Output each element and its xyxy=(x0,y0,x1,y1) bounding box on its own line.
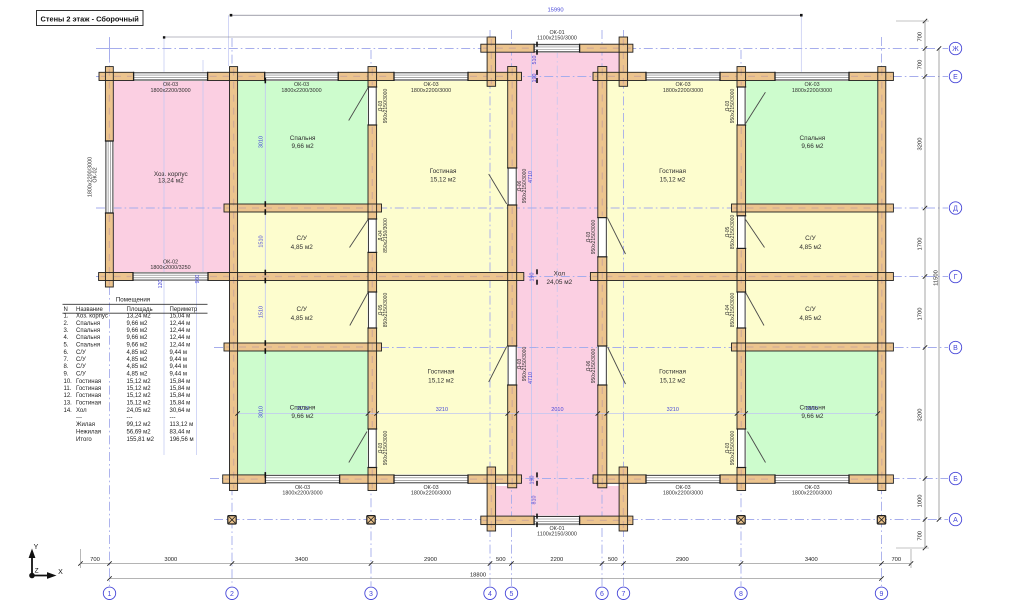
svg-text:С/У: С/У xyxy=(805,306,816,313)
svg-text:700: 700 xyxy=(891,557,901,563)
svg-text:15,84 м: 15,84 м xyxy=(170,379,191,385)
svg-text:4710: 4710 xyxy=(528,372,534,384)
svg-text:850х2150/3000: 850х2150/3000 xyxy=(730,293,736,328)
svg-text:4.: 4. xyxy=(64,335,69,341)
svg-text:3.: 3. xyxy=(64,328,69,334)
svg-text:4,85 м2: 4,85 м2 xyxy=(799,315,822,322)
svg-text:Гостиная: Гостиная xyxy=(430,168,457,175)
svg-text:850х2150/3000: 850х2150/3000 xyxy=(383,293,389,328)
svg-text:99,12 м2: 99,12 м2 xyxy=(127,422,152,428)
svg-text:15,12 м2: 15,12 м2 xyxy=(127,379,152,385)
svg-text:4: 4 xyxy=(488,591,492,598)
svg-text:1800х2200/3000: 1800х2200/3000 xyxy=(792,88,832,94)
svg-text:Спальня: Спальня xyxy=(76,321,100,327)
svg-text:Спальня: Спальня xyxy=(800,135,826,142)
svg-text:1510: 1510 xyxy=(259,306,265,318)
svg-text:3200: 3200 xyxy=(917,409,923,422)
svg-text:4,85 м2: 4,85 м2 xyxy=(291,244,314,251)
svg-text:6: 6 xyxy=(600,591,604,598)
svg-text:Y: Y xyxy=(34,544,39,551)
svg-text:950х2150/3000: 950х2150/3000 xyxy=(383,89,389,124)
svg-text:15,12 м2: 15,12 м2 xyxy=(127,393,152,399)
svg-text:Е: Е xyxy=(953,74,958,81)
svg-text:2900: 2900 xyxy=(676,557,689,563)
svg-text:С/У: С/У xyxy=(296,306,307,313)
svg-text:4,85 м2: 4,85 м2 xyxy=(127,357,148,363)
svg-text:9,44 м: 9,44 м xyxy=(170,350,187,356)
svg-text:11500: 11500 xyxy=(933,270,939,286)
svg-text:12,44 м: 12,44 м xyxy=(170,335,191,341)
svg-text:950х2150/3000: 950х2150/3000 xyxy=(522,347,528,382)
svg-text:500: 500 xyxy=(496,557,506,563)
svg-text:С/У: С/У xyxy=(76,372,86,378)
svg-text:3210: 3210 xyxy=(436,407,448,413)
svg-text:190: 190 xyxy=(529,476,535,485)
svg-text:6.: 6. xyxy=(64,350,69,356)
svg-text:15,84 м: 15,84 м xyxy=(170,386,191,392)
svg-text:1: 1 xyxy=(108,591,112,598)
svg-text:Гостиная: Гостиная xyxy=(76,386,101,392)
svg-text:9,44 м: 9,44 м xyxy=(170,357,187,363)
svg-text:13,24 м2: 13,24 м2 xyxy=(127,314,152,320)
svg-text:190: 190 xyxy=(532,74,538,83)
svg-text:Гостиная: Гостиная xyxy=(659,369,686,376)
svg-text:18800: 18800 xyxy=(470,572,486,578)
svg-text:Гостиная: Гостиная xyxy=(76,393,101,399)
svg-text:Помещения: Помещения xyxy=(116,297,150,304)
svg-text:N: N xyxy=(64,307,68,313)
svg-text:4,85 м2: 4,85 м2 xyxy=(127,364,148,370)
svg-text:9,44 м: 9,44 м xyxy=(170,364,187,370)
svg-text:1000: 1000 xyxy=(917,495,923,508)
svg-text:Ж: Ж xyxy=(952,46,959,53)
svg-text:4,85 м2: 4,85 м2 xyxy=(127,372,148,378)
svg-text:9,66 м2: 9,66 м2 xyxy=(127,328,148,334)
svg-text:3010: 3010 xyxy=(259,406,265,418)
svg-text:15,12 м2: 15,12 м2 xyxy=(127,386,152,392)
svg-text:1800х2000/3250: 1800х2000/3250 xyxy=(150,265,190,271)
svg-text:1700: 1700 xyxy=(917,308,923,321)
svg-text:Стены 2 этаж - Сборочный: Стены 2 этаж - Сборочный xyxy=(41,14,140,23)
svg-text:Г: Г xyxy=(954,274,958,281)
svg-text:3400: 3400 xyxy=(805,557,818,563)
svg-text:9,66 м2: 9,66 м2 xyxy=(801,413,824,420)
svg-text:9,66 м2: 9,66 м2 xyxy=(127,321,148,327)
svg-text:700: 700 xyxy=(917,531,923,541)
svg-text:Гостиная: Гостиная xyxy=(76,379,101,385)
svg-text:2: 2 xyxy=(230,591,234,598)
svg-text:Название: Название xyxy=(76,307,103,313)
svg-text:Хол: Хол xyxy=(554,271,566,278)
svg-text:3400: 3400 xyxy=(295,557,308,563)
svg-text:Спальня: Спальня xyxy=(290,405,316,412)
svg-text:113,12 м: 113,12 м xyxy=(170,422,194,428)
svg-text:Хоз. корпус: Хоз. корпус xyxy=(76,314,108,320)
svg-text:9,66 м2: 9,66 м2 xyxy=(127,343,148,349)
svg-text:С/У: С/У xyxy=(296,235,307,242)
svg-text:4,85 м2: 4,85 м2 xyxy=(799,244,822,251)
svg-text:Гостиная: Гостиная xyxy=(659,168,686,175)
svg-text:---: --- xyxy=(170,415,176,421)
svg-text:10.: 10. xyxy=(64,379,73,385)
svg-text:Спальня: Спальня xyxy=(290,135,316,142)
svg-text:3200: 3200 xyxy=(917,138,923,151)
svg-text:2010: 2010 xyxy=(551,407,563,413)
svg-text:11.: 11. xyxy=(64,386,72,392)
svg-text:2.: 2. xyxy=(64,321,69,327)
svg-text:Гостиная: Гостиная xyxy=(76,401,101,407)
svg-text:9,66 м2: 9,66 м2 xyxy=(127,335,148,341)
svg-text:5: 5 xyxy=(510,591,514,598)
svg-text:1800х2200/3000: 1800х2200/3000 xyxy=(411,88,451,94)
svg-text:2900: 2900 xyxy=(424,557,437,563)
svg-text:Д: Д xyxy=(953,206,958,213)
svg-text:---: --- xyxy=(127,415,133,421)
svg-text:510: 510 xyxy=(532,56,538,65)
svg-text:1800х2200/3000: 1800х2200/3000 xyxy=(411,491,451,497)
svg-text:4710: 4710 xyxy=(528,171,534,183)
svg-text:190: 190 xyxy=(529,273,535,282)
svg-text:9.: 9. xyxy=(64,372,69,378)
svg-text:8: 8 xyxy=(739,591,743,598)
svg-text:15,12 м2: 15,12 м2 xyxy=(660,176,686,183)
svg-text:Б: Б xyxy=(953,476,958,483)
svg-text:1800х2200/3000: 1800х2200/3000 xyxy=(663,491,703,497)
svg-text:950х2150/3000: 950х2150/3000 xyxy=(591,349,597,384)
svg-text:9,66 м2: 9,66 м2 xyxy=(801,143,824,150)
svg-text:13.: 13. xyxy=(64,401,73,407)
svg-text:15,12 м2: 15,12 м2 xyxy=(660,377,686,384)
svg-text:3010: 3010 xyxy=(259,136,265,148)
svg-text:---: --- xyxy=(76,415,82,421)
svg-text:700: 700 xyxy=(917,60,923,70)
svg-text:1100х2150/3000: 1100х2150/3000 xyxy=(537,36,577,42)
svg-text:12,44 м: 12,44 м xyxy=(170,328,191,334)
svg-text:3210: 3210 xyxy=(667,407,679,413)
svg-text:15,12 м2: 15,12 м2 xyxy=(428,377,454,384)
svg-text:12.: 12. xyxy=(64,393,73,399)
svg-text:Спальня: Спальня xyxy=(76,335,100,341)
svg-text:2200: 2200 xyxy=(550,557,563,563)
svg-text:9: 9 xyxy=(880,591,884,598)
svg-text:3000: 3000 xyxy=(164,557,177,563)
svg-text:1800х2200/3000: 1800х2200/3000 xyxy=(663,88,703,94)
svg-text:Z: Z xyxy=(35,568,39,575)
svg-text:120: 120 xyxy=(158,280,164,289)
svg-text:700: 700 xyxy=(917,32,923,42)
svg-text:30,64 м: 30,64 м xyxy=(170,408,191,414)
svg-text:С/У: С/У xyxy=(76,357,86,363)
svg-text:155,81 м2: 155,81 м2 xyxy=(127,437,155,443)
svg-text:Спальня: Спальня xyxy=(76,343,100,349)
svg-text:1700: 1700 xyxy=(917,238,923,251)
svg-text:950: 950 xyxy=(195,275,201,284)
svg-text:Жилая: Жилая xyxy=(76,422,95,428)
svg-text:1800х2200/3000: 1800х2200/3000 xyxy=(282,491,322,497)
svg-text:1800х2200/3000: 1800х2200/3000 xyxy=(88,157,94,197)
svg-text:15990: 15990 xyxy=(547,7,563,13)
svg-text:15,12 м2: 15,12 м2 xyxy=(127,401,152,407)
svg-text:Хол: Хол xyxy=(76,408,87,414)
svg-text:83,44 м: 83,44 м xyxy=(170,430,191,436)
svg-text:С/У: С/У xyxy=(76,364,86,370)
svg-text:X: X xyxy=(58,569,63,576)
svg-text:500: 500 xyxy=(608,557,618,563)
svg-text:В: В xyxy=(953,345,958,352)
svg-text:Нежилая: Нежилая xyxy=(76,430,101,436)
svg-text:А: А xyxy=(953,517,958,524)
svg-text:850х2150/3000: 850х2150/3000 xyxy=(730,215,736,250)
svg-text:Итого: Итого xyxy=(76,437,92,443)
svg-text:15,84 м: 15,84 м xyxy=(170,393,191,399)
svg-text:950х2150/3000: 950х2150/3000 xyxy=(522,169,528,204)
svg-text:1100х2150/3000: 1100х2150/3000 xyxy=(537,532,577,538)
svg-text:9,66 м2: 9,66 м2 xyxy=(291,413,314,420)
svg-text:950х2150/3000: 950х2150/3000 xyxy=(730,431,736,466)
svg-text:Периметр: Периметр xyxy=(170,307,198,313)
svg-text:7.: 7. xyxy=(64,357,69,363)
svg-text:Спальня: Спальня xyxy=(76,328,100,334)
svg-text:С/У: С/У xyxy=(76,350,86,356)
svg-text:12,44 м: 12,44 м xyxy=(170,343,191,349)
svg-text:810: 810 xyxy=(531,496,537,505)
svg-text:1510: 1510 xyxy=(259,235,265,247)
svg-text:1800х2200/3000: 1800х2200/3000 xyxy=(281,88,321,94)
svg-text:9,66 м2: 9,66 м2 xyxy=(292,143,315,150)
svg-text:9,44 м: 9,44 м xyxy=(170,372,187,378)
svg-text:15,84 м: 15,84 м xyxy=(170,401,191,407)
svg-text:4,85 м2: 4,85 м2 xyxy=(291,315,314,322)
svg-text:1800х2200/3000: 1800х2200/3000 xyxy=(792,491,832,497)
svg-text:1.: 1. xyxy=(64,314,69,320)
svg-text:950х2150/3000: 950х2150/3000 xyxy=(591,220,597,255)
svg-text:950х2150/3000: 950х2150/3000 xyxy=(383,431,389,466)
svg-text:56,69 м2: 56,69 м2 xyxy=(127,430,152,436)
svg-text:12,44 м: 12,44 м xyxy=(170,321,191,327)
svg-text:7: 7 xyxy=(622,591,626,598)
svg-text:Спальня: Спальня xyxy=(800,405,826,412)
svg-text:700: 700 xyxy=(90,557,100,563)
svg-text:1800х2200/3000: 1800х2200/3000 xyxy=(151,88,191,94)
svg-text:Гостиная: Гостиная xyxy=(428,369,455,376)
svg-text:24,05 м2: 24,05 м2 xyxy=(127,408,152,414)
svg-text:С/У: С/У xyxy=(805,235,816,242)
svg-text:5.: 5. xyxy=(64,343,69,349)
svg-text:3: 3 xyxy=(369,591,373,598)
svg-text:196,56 м: 196,56 м xyxy=(170,437,194,443)
svg-text:15,12 м2: 15,12 м2 xyxy=(430,176,456,183)
svg-text:15,04 м: 15,04 м xyxy=(170,314,191,320)
svg-text:950х2150/3000: 950х2150/3000 xyxy=(730,89,736,124)
svg-text:14.: 14. xyxy=(64,408,73,414)
svg-text:Площадь: Площадь xyxy=(127,307,153,313)
svg-text:13,24 м2: 13,24 м2 xyxy=(158,177,184,184)
svg-text:4,85 м2: 4,85 м2 xyxy=(127,350,148,356)
svg-text:8.: 8. xyxy=(64,364,69,370)
svg-text:24,05 м2: 24,05 м2 xyxy=(546,279,572,286)
svg-text:850х2150/3000: 850х2150/3000 xyxy=(383,218,389,253)
